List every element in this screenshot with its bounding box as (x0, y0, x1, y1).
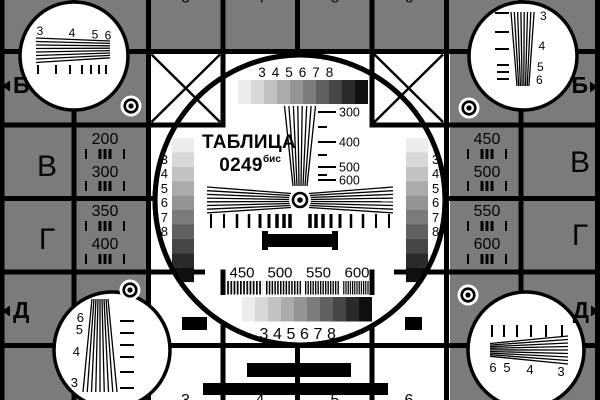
edge-digit: 6 (405, 0, 413, 7)
step (346, 297, 359, 322)
burst-bars (227, 281, 374, 295)
grayscale-staircase-left (172, 138, 194, 282)
step (172, 167, 194, 182)
step (242, 297, 255, 322)
row-letter-right-g: Г (572, 219, 588, 252)
freq-value: 450 (474, 131, 501, 148)
ruler-label: 400 (339, 136, 360, 150)
test-card: 3 4 5 6 3 4 5 6 3 4 5 6 (0, 0, 600, 400)
scale-label: 7 (432, 210, 439, 225)
edge-digit: 3 (181, 392, 190, 400)
title-text: ТАБЛИЦА (202, 132, 296, 153)
step (294, 297, 307, 322)
step (172, 196, 194, 211)
scale-label: 3 (161, 152, 168, 167)
burst-segment (227, 281, 263, 295)
wedge-label: 3 (557, 364, 564, 379)
step (172, 239, 194, 254)
grayscale-staircase-top (238, 80, 368, 104)
scale-label: 8 (326, 65, 334, 80)
registration-target-top-right (459, 98, 480, 119)
ruler-label: 500 (339, 161, 360, 175)
scale-label: 7 (161, 210, 168, 225)
wedge-label: 4 (539, 39, 546, 53)
step (329, 80, 342, 104)
grayscale-left-labels: 3 4 5 6 7 8 (161, 152, 168, 239)
burst-segment (304, 281, 340, 295)
wedge-label: 5 (76, 322, 83, 337)
step (303, 80, 316, 104)
corner-circle-top-right: 3 4 5 6 (469, 2, 577, 110)
wedge-label: 5 (537, 60, 544, 74)
scale-label: 6 (161, 195, 168, 210)
scale-label: 4 (272, 65, 280, 80)
grayscale-staircase-right (406, 138, 428, 282)
registration-target-bottom-left (120, 280, 141, 301)
wedge-label: 6 (536, 73, 543, 87)
step (307, 297, 320, 322)
step (251, 80, 264, 104)
scale-label: 8 (327, 326, 336, 343)
scale-label: 3 (432, 152, 439, 167)
burst-segment (266, 281, 302, 295)
step (268, 297, 281, 322)
edge-digit: 5 (331, 0, 339, 7)
wedge-label: 5 (503, 360, 510, 375)
freq-value: 600 (474, 236, 501, 253)
freq-value: 350 (92, 203, 119, 220)
marker-letter: Б (13, 72, 30, 98)
step (406, 167, 428, 182)
wedge-label: 3 (71, 375, 78, 390)
freq-value: 300 (92, 164, 119, 181)
step (359, 297, 372, 322)
scale-label: 5 (161, 181, 168, 196)
scale-label: 5 (432, 181, 439, 196)
corner-circle-bottom-right: 6 5 4 3 (468, 292, 584, 400)
step (333, 297, 346, 322)
burst-label: 500 (267, 265, 292, 282)
scale-label: 3 (260, 326, 269, 343)
freq-value: 400 (92, 236, 119, 253)
step (255, 297, 268, 322)
step (406, 138, 428, 153)
step (406, 224, 428, 239)
step (290, 80, 303, 104)
step (172, 181, 194, 196)
ruler-label: 300 (339, 106, 360, 120)
burst-segment (343, 281, 374, 295)
center-target (289, 189, 311, 211)
registration-target-bottom-right (458, 285, 479, 306)
card-number-suffix: бис (263, 153, 281, 165)
edge-digit: 4 (256, 0, 264, 7)
wedge-label: 4 (69, 26, 76, 40)
grayscale-staircase-bottom (242, 297, 372, 322)
step (406, 239, 428, 254)
scale-label: 6 (432, 195, 439, 210)
row-letter-left-g: Г (39, 223, 55, 256)
wedge-label: 5 (92, 28, 99, 42)
wedge-label: 4 (526, 362, 533, 377)
black-mark-left (182, 317, 207, 330)
long-black-bar (203, 383, 388, 395)
scale-label: 7 (312, 65, 320, 80)
black-mark-right (405, 317, 422, 330)
edge-digit: 6 (405, 392, 414, 400)
scale-label: 4 (432, 166, 439, 181)
edge-digit: 3 (181, 0, 189, 7)
wedge-label: 3 (37, 24, 44, 38)
step (406, 253, 428, 268)
freq-value: 500 (474, 164, 501, 181)
step (277, 80, 290, 104)
step (342, 80, 355, 104)
scale-label: 4 (273, 326, 282, 343)
step (406, 152, 428, 167)
step (406, 210, 428, 225)
row-letter-left-v: В (37, 150, 57, 183)
step (172, 210, 194, 225)
scale-label: 5 (287, 326, 296, 343)
corner-circle-top-left: 3 4 5 6 (20, 2, 128, 110)
scale-label: 3 (258, 65, 266, 80)
marker-letter: Б (571, 72, 588, 98)
scale-label: 8 (432, 224, 439, 239)
marker-letter: Д (13, 297, 29, 323)
step (406, 181, 428, 196)
short-black-bar (247, 363, 351, 377)
step (281, 297, 294, 322)
corner-circle-bottom-left: 6 5 4 3 (54, 292, 170, 400)
step (238, 80, 251, 104)
step (264, 80, 277, 104)
wedge-label: 3 (540, 9, 547, 23)
registration-target-top-left (121, 96, 142, 117)
wedge-label: 6 (105, 29, 112, 43)
step (406, 196, 428, 211)
step (172, 253, 194, 268)
burst-label: 600 (344, 265, 369, 282)
scale-label: 6 (300, 326, 309, 343)
marker-letter: Д (573, 297, 589, 323)
wedge-label: 4 (73, 344, 80, 359)
scale-label: 6 (299, 65, 307, 80)
step (316, 80, 329, 104)
grayscale-right-labels: 3 4 5 6 7 8 (432, 152, 439, 239)
step (172, 138, 194, 153)
ruler-label: 600 (339, 174, 360, 188)
scale-label: 7 (314, 326, 323, 343)
burst-label: 450 (229, 265, 254, 282)
row-letter-right-v: В (570, 146, 590, 179)
card-number: 0249 (219, 155, 262, 176)
scale-label: 4 (161, 166, 168, 181)
step (172, 152, 194, 167)
scale-label: 8 (161, 224, 168, 239)
step (320, 297, 333, 322)
step (355, 80, 368, 104)
wedge-label: 6 (489, 360, 496, 375)
scale-label: 5 (285, 65, 293, 80)
freq-value: 200 (92, 131, 119, 148)
burst-label: 550 (306, 265, 331, 282)
step (172, 224, 194, 239)
freq-value: 550 (474, 203, 501, 220)
